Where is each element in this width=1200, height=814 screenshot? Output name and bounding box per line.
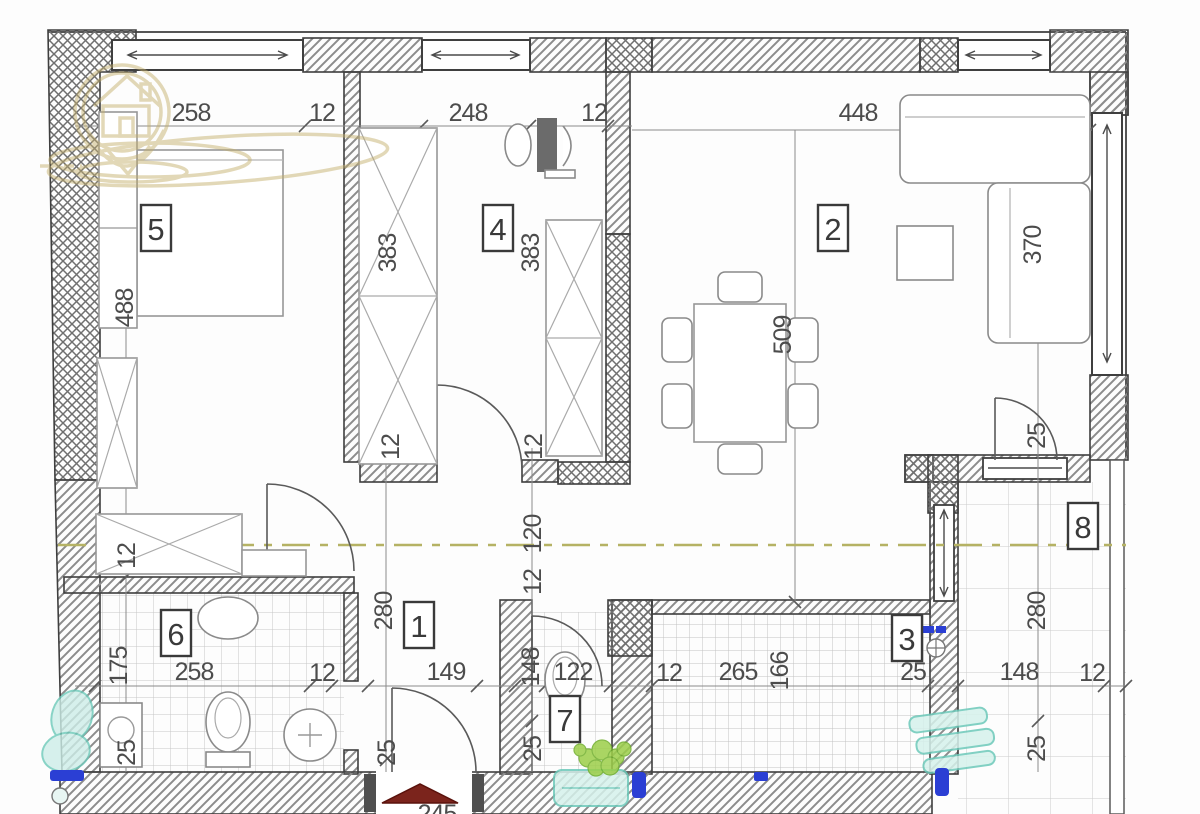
svg-text:2: 2 <box>824 212 841 247</box>
room-label-2: 2 <box>818 205 848 251</box>
dim-label: 258 <box>175 658 214 686</box>
dim-label: 25 <box>1023 423 1051 449</box>
chair-icon <box>563 126 571 166</box>
dim-label: 25 <box>900 658 926 686</box>
dim-label: 509 <box>769 316 797 355</box>
svg-text:7: 7 <box>556 703 573 738</box>
room-label-6: 6 <box>161 610 191 656</box>
right-wall-segment <box>1090 72 1128 115</box>
floor-plan-canvas: 258 12 248 12 448 488 383 383 370 509 12… <box>0 0 1200 814</box>
desk-and-chairs <box>505 118 575 178</box>
dim-label: 370 <box>1019 226 1047 265</box>
dim-label: 280 <box>1023 592 1051 631</box>
dim-label: 12 <box>309 659 335 687</box>
top-wall-segment <box>652 38 920 72</box>
window-room4 <box>422 40 530 70</box>
shaft-wall <box>606 234 630 462</box>
window-terrace3-terrace8 <box>934 505 954 601</box>
room-label-3: 3 <box>892 615 922 661</box>
toilet-icon <box>206 692 250 767</box>
wc-right-pier <box>608 600 652 656</box>
svg-text:8: 8 <box>1074 510 1091 545</box>
chair-icon <box>662 318 692 362</box>
window-terrace8-door-side <box>983 458 1067 479</box>
dim-label: 25 <box>519 736 547 762</box>
terrace-8-railing <box>1110 460 1124 814</box>
floor-plan-page: 258 12 248 12 448 488 383 383 370 509 12… <box>0 0 1200 814</box>
svg-text:5: 5 <box>147 212 164 247</box>
room-label-5: 5 <box>141 205 171 251</box>
chair-icon <box>505 124 531 166</box>
entrance-jamb <box>364 774 376 812</box>
coffee-table <box>897 226 953 280</box>
drain-marker <box>632 772 646 798</box>
window-room2-right <box>1092 113 1122 375</box>
dim-label: 166 <box>766 652 794 691</box>
hall-bathroom-jamb <box>344 750 358 774</box>
chair-icon <box>718 444 762 474</box>
dim-label: 12 <box>113 543 141 569</box>
dim-label: 12 <box>309 99 335 127</box>
svg-text:6: 6 <box>167 617 184 652</box>
top-wall-pier <box>606 38 652 72</box>
room-label-7: 7 <box>550 696 580 742</box>
chair-icon <box>718 272 762 302</box>
window-room2-top <box>958 40 1050 70</box>
right-wall-segment <box>1090 375 1128 460</box>
desk-drawer <box>545 170 575 178</box>
top-wall-segment <box>530 38 606 72</box>
dim-label: 280 <box>370 592 398 631</box>
svg-text:3: 3 <box>898 622 915 657</box>
chair-icon <box>662 384 692 428</box>
svg-text:4: 4 <box>489 212 506 247</box>
dim-label: 149 <box>427 658 466 686</box>
dim-label: 265 <box>719 658 758 686</box>
drain-marker <box>935 768 949 796</box>
fixture-symbol <box>52 788 68 804</box>
top-wall-segment <box>303 38 422 72</box>
desk <box>537 118 557 172</box>
dim-label: 148 <box>1000 658 1039 686</box>
sofa <box>900 95 1090 343</box>
room-label-4: 4 <box>483 205 513 251</box>
dim-label: 148 <box>517 648 545 687</box>
entrance-jamb <box>472 774 484 812</box>
dim-label: 120 <box>519 515 547 554</box>
dim-label: 122 <box>554 658 593 686</box>
bathroom-top-wall <box>64 577 354 593</box>
dim-label: 25 <box>113 740 141 766</box>
dim-label: 248 <box>449 99 488 127</box>
dim-label: 12 <box>520 434 548 460</box>
room4-bottom-wall <box>522 460 558 482</box>
wardrobe-room4-left <box>359 128 437 464</box>
drain-marker <box>50 770 84 781</box>
wall-room4-room2 <box>606 72 630 234</box>
chair-icon <box>788 384 818 428</box>
svg-text:1: 1 <box>410 609 427 644</box>
hall-bathroom-wall <box>344 593 358 681</box>
door-room4 <box>437 385 522 470</box>
dim-label: 12 <box>656 659 682 687</box>
dim-label: 383 <box>374 234 402 273</box>
dim-label: 258 <box>172 99 211 127</box>
room-label-1: 1 <box>404 602 434 648</box>
drain-marker <box>754 772 768 781</box>
top-wall-pier <box>920 38 958 72</box>
room4-bottom-pier <box>558 462 630 484</box>
terrace-3-tiles <box>652 614 930 774</box>
dim-label: 12 <box>581 99 607 127</box>
drain-marker <box>922 626 934 633</box>
dim-label: 12 <box>377 434 405 460</box>
dim-label: 488 <box>111 289 139 328</box>
window-room5 <box>112 40 303 70</box>
dim-label: 25 <box>1023 736 1051 762</box>
dim-label: 25 <box>373 740 401 766</box>
sink-icon <box>198 597 258 639</box>
dim-label: 12 <box>519 569 547 595</box>
door-entrance <box>392 688 476 772</box>
wall-room5-room4 <box>344 72 360 462</box>
vent-symbol <box>927 639 945 657</box>
entrance-label: 245 <box>418 800 457 814</box>
bottom-wall <box>60 772 932 814</box>
dim-label: 175 <box>105 647 133 686</box>
room-label-8: 8 <box>1068 503 1098 549</box>
dim-label: 383 <box>517 234 545 273</box>
wardrobe-room4-right <box>546 220 602 456</box>
dim-label: 448 <box>839 99 878 127</box>
washbasin-icon <box>284 709 336 761</box>
drain-marker <box>936 626 946 633</box>
cabinet-teal-wc7 <box>554 770 628 806</box>
terrace-3-top-wall <box>652 600 930 614</box>
dim-label: 12 <box>1079 659 1105 687</box>
